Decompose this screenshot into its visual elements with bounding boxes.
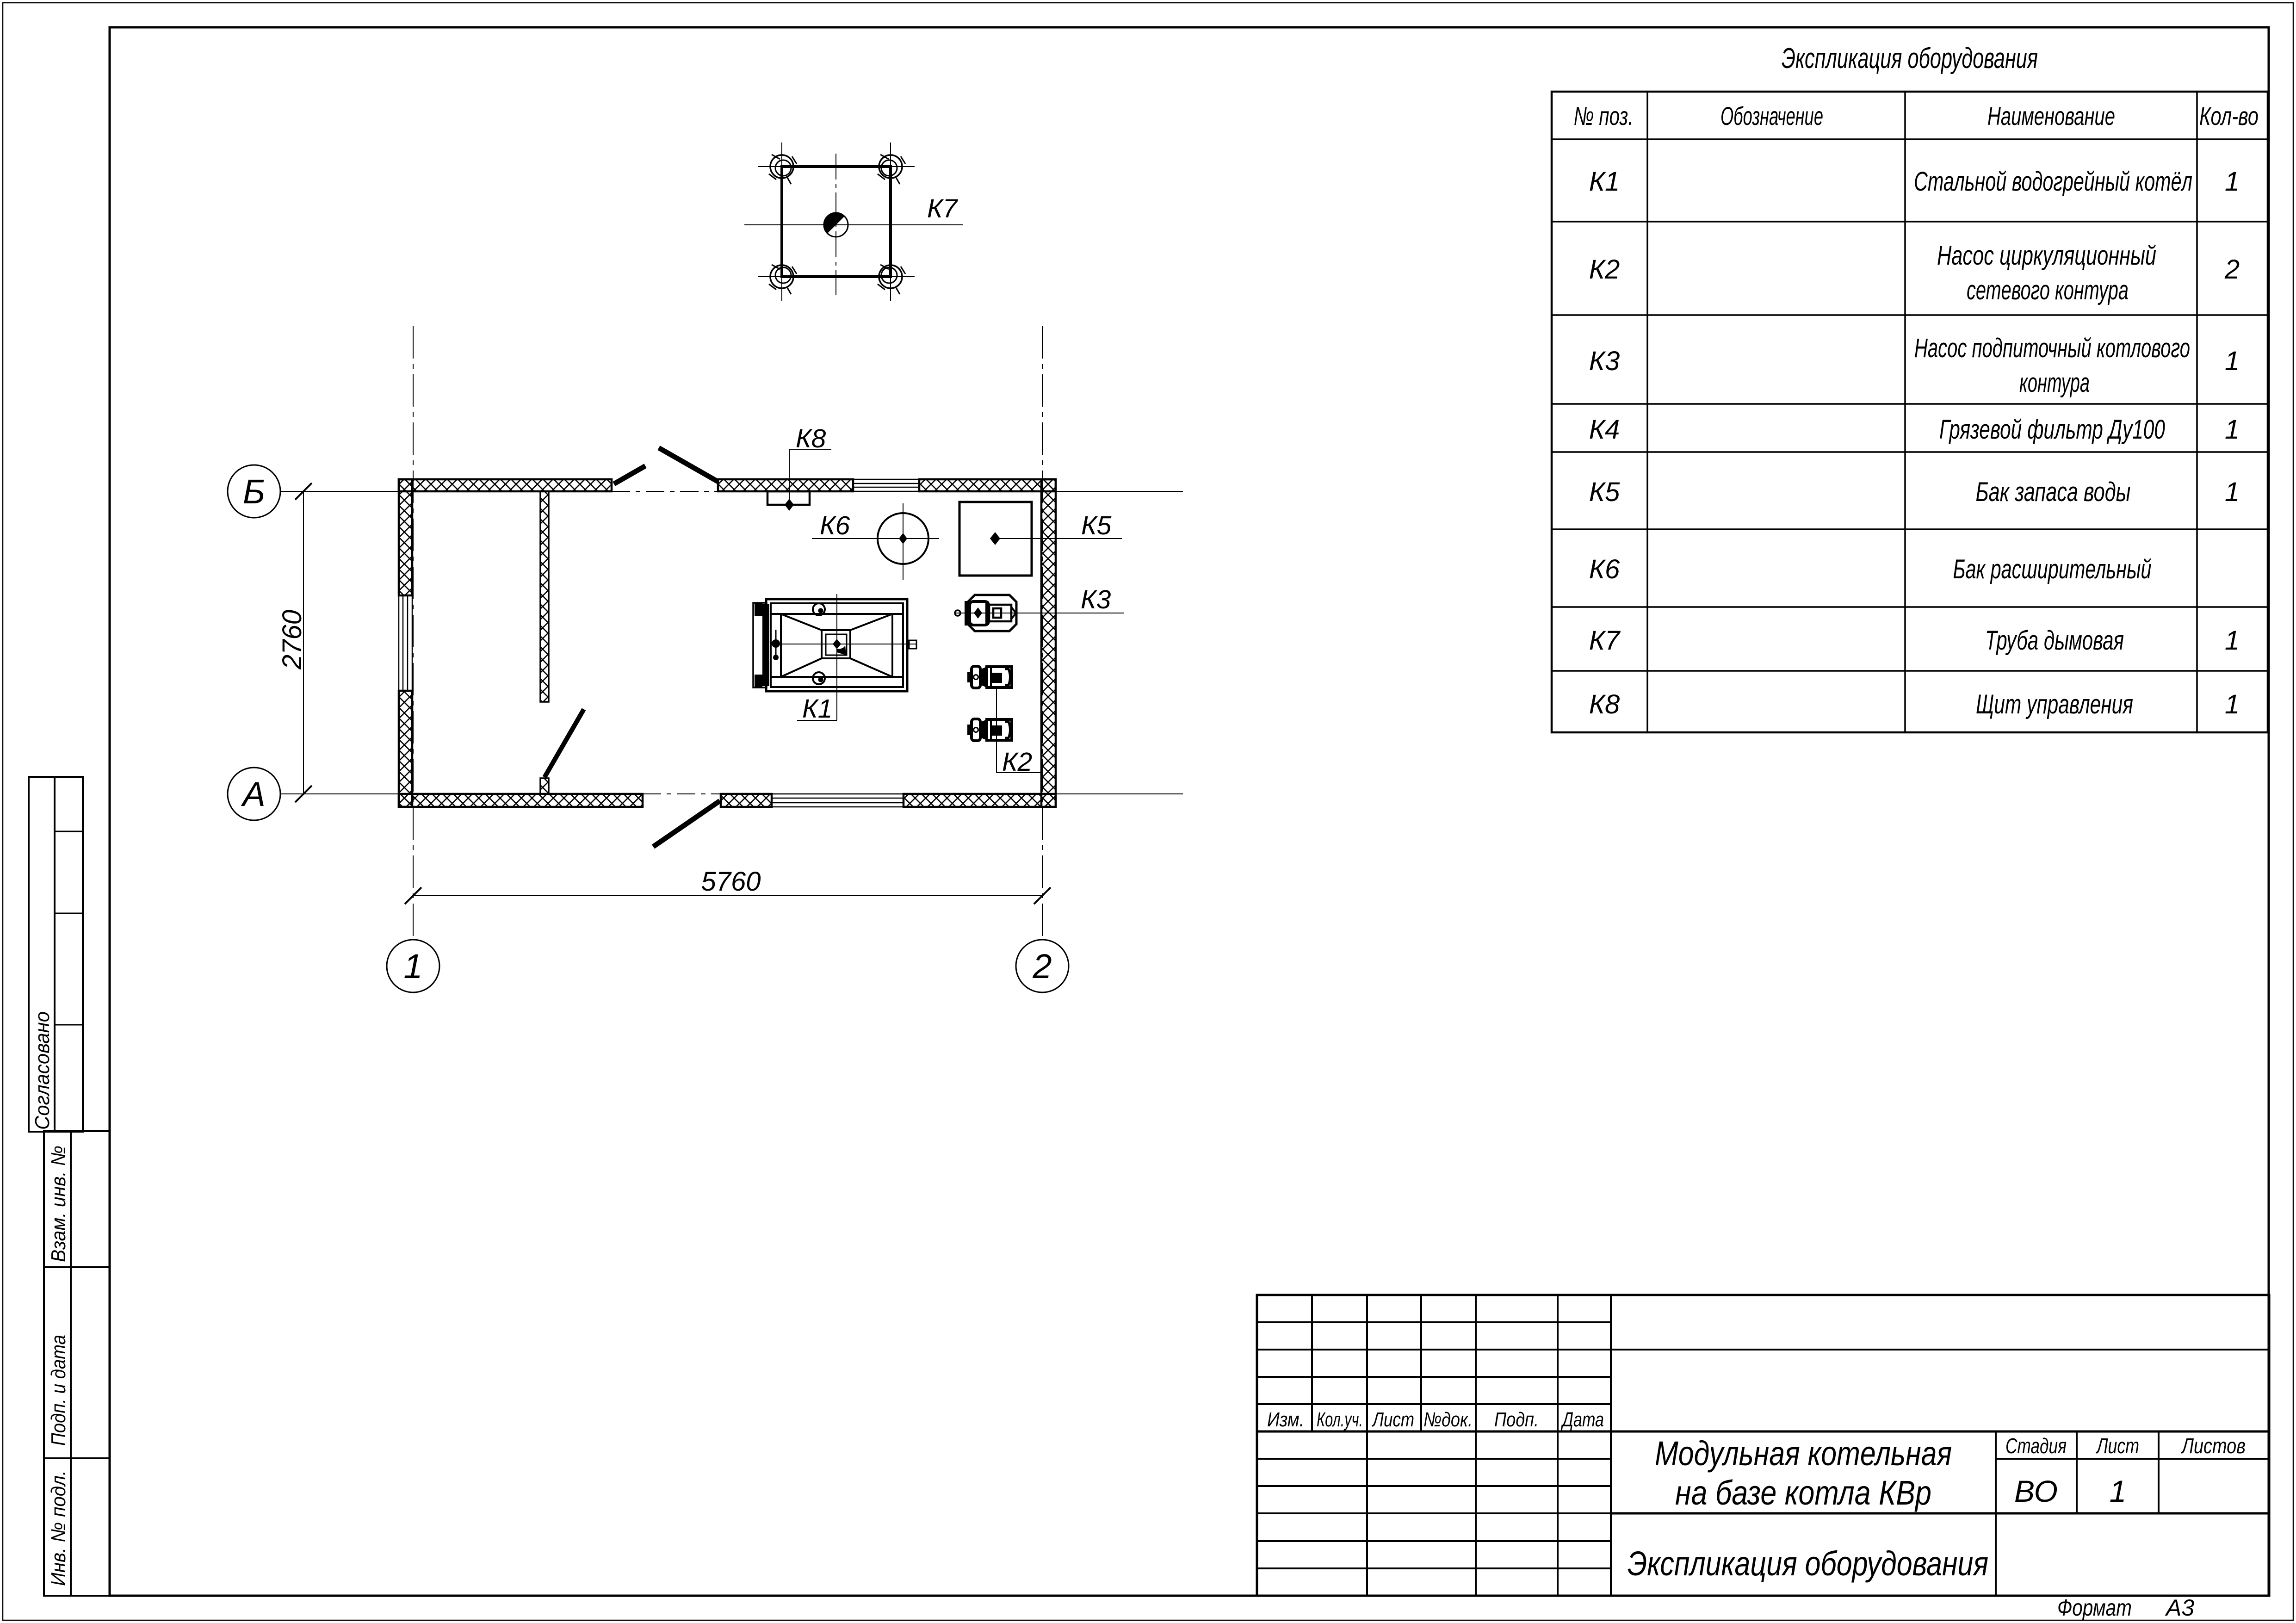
- svg-text:1: 1: [2110, 1474, 2127, 1508]
- svg-text:К6: К6: [820, 511, 850, 540]
- svg-text:1: 1: [2225, 477, 2240, 507]
- svg-text:Инв. № подл.: Инв. № подл.: [47, 1470, 70, 1586]
- svg-text:1: 1: [2225, 415, 2240, 445]
- svg-text:К8: К8: [1589, 689, 1620, 719]
- svg-text:Наименование: Наименование: [1987, 101, 2115, 130]
- svg-text:К3: К3: [1589, 346, 1620, 376]
- svg-text:Листов: Листов: [2181, 1434, 2246, 1458]
- svg-text:К7: К7: [927, 194, 959, 223]
- svg-text:1: 1: [2225, 626, 2240, 656]
- svg-text:Бак расширительный: Бак расширительный: [1953, 554, 2152, 584]
- svg-text:А: А: [241, 775, 265, 813]
- svg-text:Стадия: Стадия: [2005, 1434, 2067, 1458]
- svg-text:Насос циркуляционный: Насос циркуляционный: [1937, 241, 2156, 271]
- svg-text:Изм.: Изм.: [1267, 1408, 1304, 1431]
- svg-text:на базе котла КВр: на базе котла КВр: [1675, 1474, 1931, 1512]
- svg-text:1: 1: [2225, 689, 2240, 719]
- svg-text:К2: К2: [1002, 747, 1032, 777]
- svg-text:Модульная котельная: Модульная котельная: [1655, 1434, 1952, 1473]
- svg-text:Насос подпиточный котлового: Насос подпиточный котлового: [1914, 333, 2190, 363]
- svg-text:2: 2: [2224, 254, 2240, 285]
- svg-text:Кол.уч.: Кол.уч.: [1317, 1408, 1363, 1431]
- svg-text:К3: К3: [1081, 585, 1111, 614]
- svg-text:Лист: Лист: [1372, 1408, 1414, 1431]
- svg-text:К4: К4: [1589, 415, 1620, 445]
- svg-text:Формат: Формат: [2057, 1595, 2132, 1621]
- svg-text:Взам. инв. №: Взам. инв. №: [47, 1146, 70, 1262]
- svg-text:Бак запаса воды: Бак запаса воды: [1976, 477, 2131, 507]
- svg-text:ВО: ВО: [2014, 1474, 2058, 1508]
- svg-text:контура: контура: [2019, 368, 2090, 398]
- svg-text:Б: Б: [243, 472, 265, 511]
- svg-text:Обозначение: Обозначение: [1720, 101, 1823, 130]
- svg-text:№ поз.: № поз.: [1574, 101, 1634, 130]
- svg-text:№док.: №док.: [1423, 1408, 1473, 1431]
- svg-text:Экспликация оборудования: Экспликация оборудования: [1782, 43, 2038, 74]
- svg-text:1: 1: [2225, 167, 2240, 197]
- svg-text:1: 1: [2225, 346, 2240, 376]
- svg-text:Лист: Лист: [2096, 1434, 2139, 1458]
- svg-text:К5: К5: [1589, 477, 1620, 507]
- svg-text:Экспликация оборудования: Экспликация оборудования: [1628, 1544, 1988, 1583]
- svg-text:Дата: Дата: [1560, 1408, 1604, 1431]
- svg-text:К1: К1: [1589, 167, 1620, 197]
- svg-text:1: 1: [403, 947, 422, 985]
- svg-text:Щит управления: Щит управления: [1976, 689, 2133, 719]
- svg-text:Стальной водогрейный котёл: Стальной водогрейный котёл: [1914, 167, 2192, 197]
- svg-text:К8: К8: [796, 424, 826, 453]
- svg-text:2: 2: [1032, 947, 1052, 985]
- svg-text:Подп. и дата: Подп. и дата: [47, 1335, 70, 1446]
- svg-text:К1: К1: [802, 694, 832, 724]
- svg-text:сетевого контура: сетевого контура: [1967, 275, 2129, 305]
- svg-text:К5: К5: [1081, 511, 1112, 540]
- svg-text:Грязевой фильтр Ду100: Грязевой фильтр Ду100: [1939, 415, 2165, 445]
- svg-text:К7: К7: [1589, 626, 1621, 656]
- svg-text:Труба дымовая: Труба дымовая: [1985, 626, 2124, 656]
- svg-text:5760: 5760: [701, 867, 761, 897]
- svg-text:Согласовано: Согласовано: [31, 1011, 54, 1130]
- svg-text:Подп.: Подп.: [1494, 1408, 1539, 1431]
- svg-text:К6: К6: [1589, 554, 1620, 584]
- svg-text:А3: А3: [2165, 1595, 2194, 1621]
- svg-text:2760: 2760: [277, 610, 307, 670]
- svg-text:К2: К2: [1589, 254, 1620, 285]
- svg-text:Кол-во: Кол-во: [2199, 101, 2259, 130]
